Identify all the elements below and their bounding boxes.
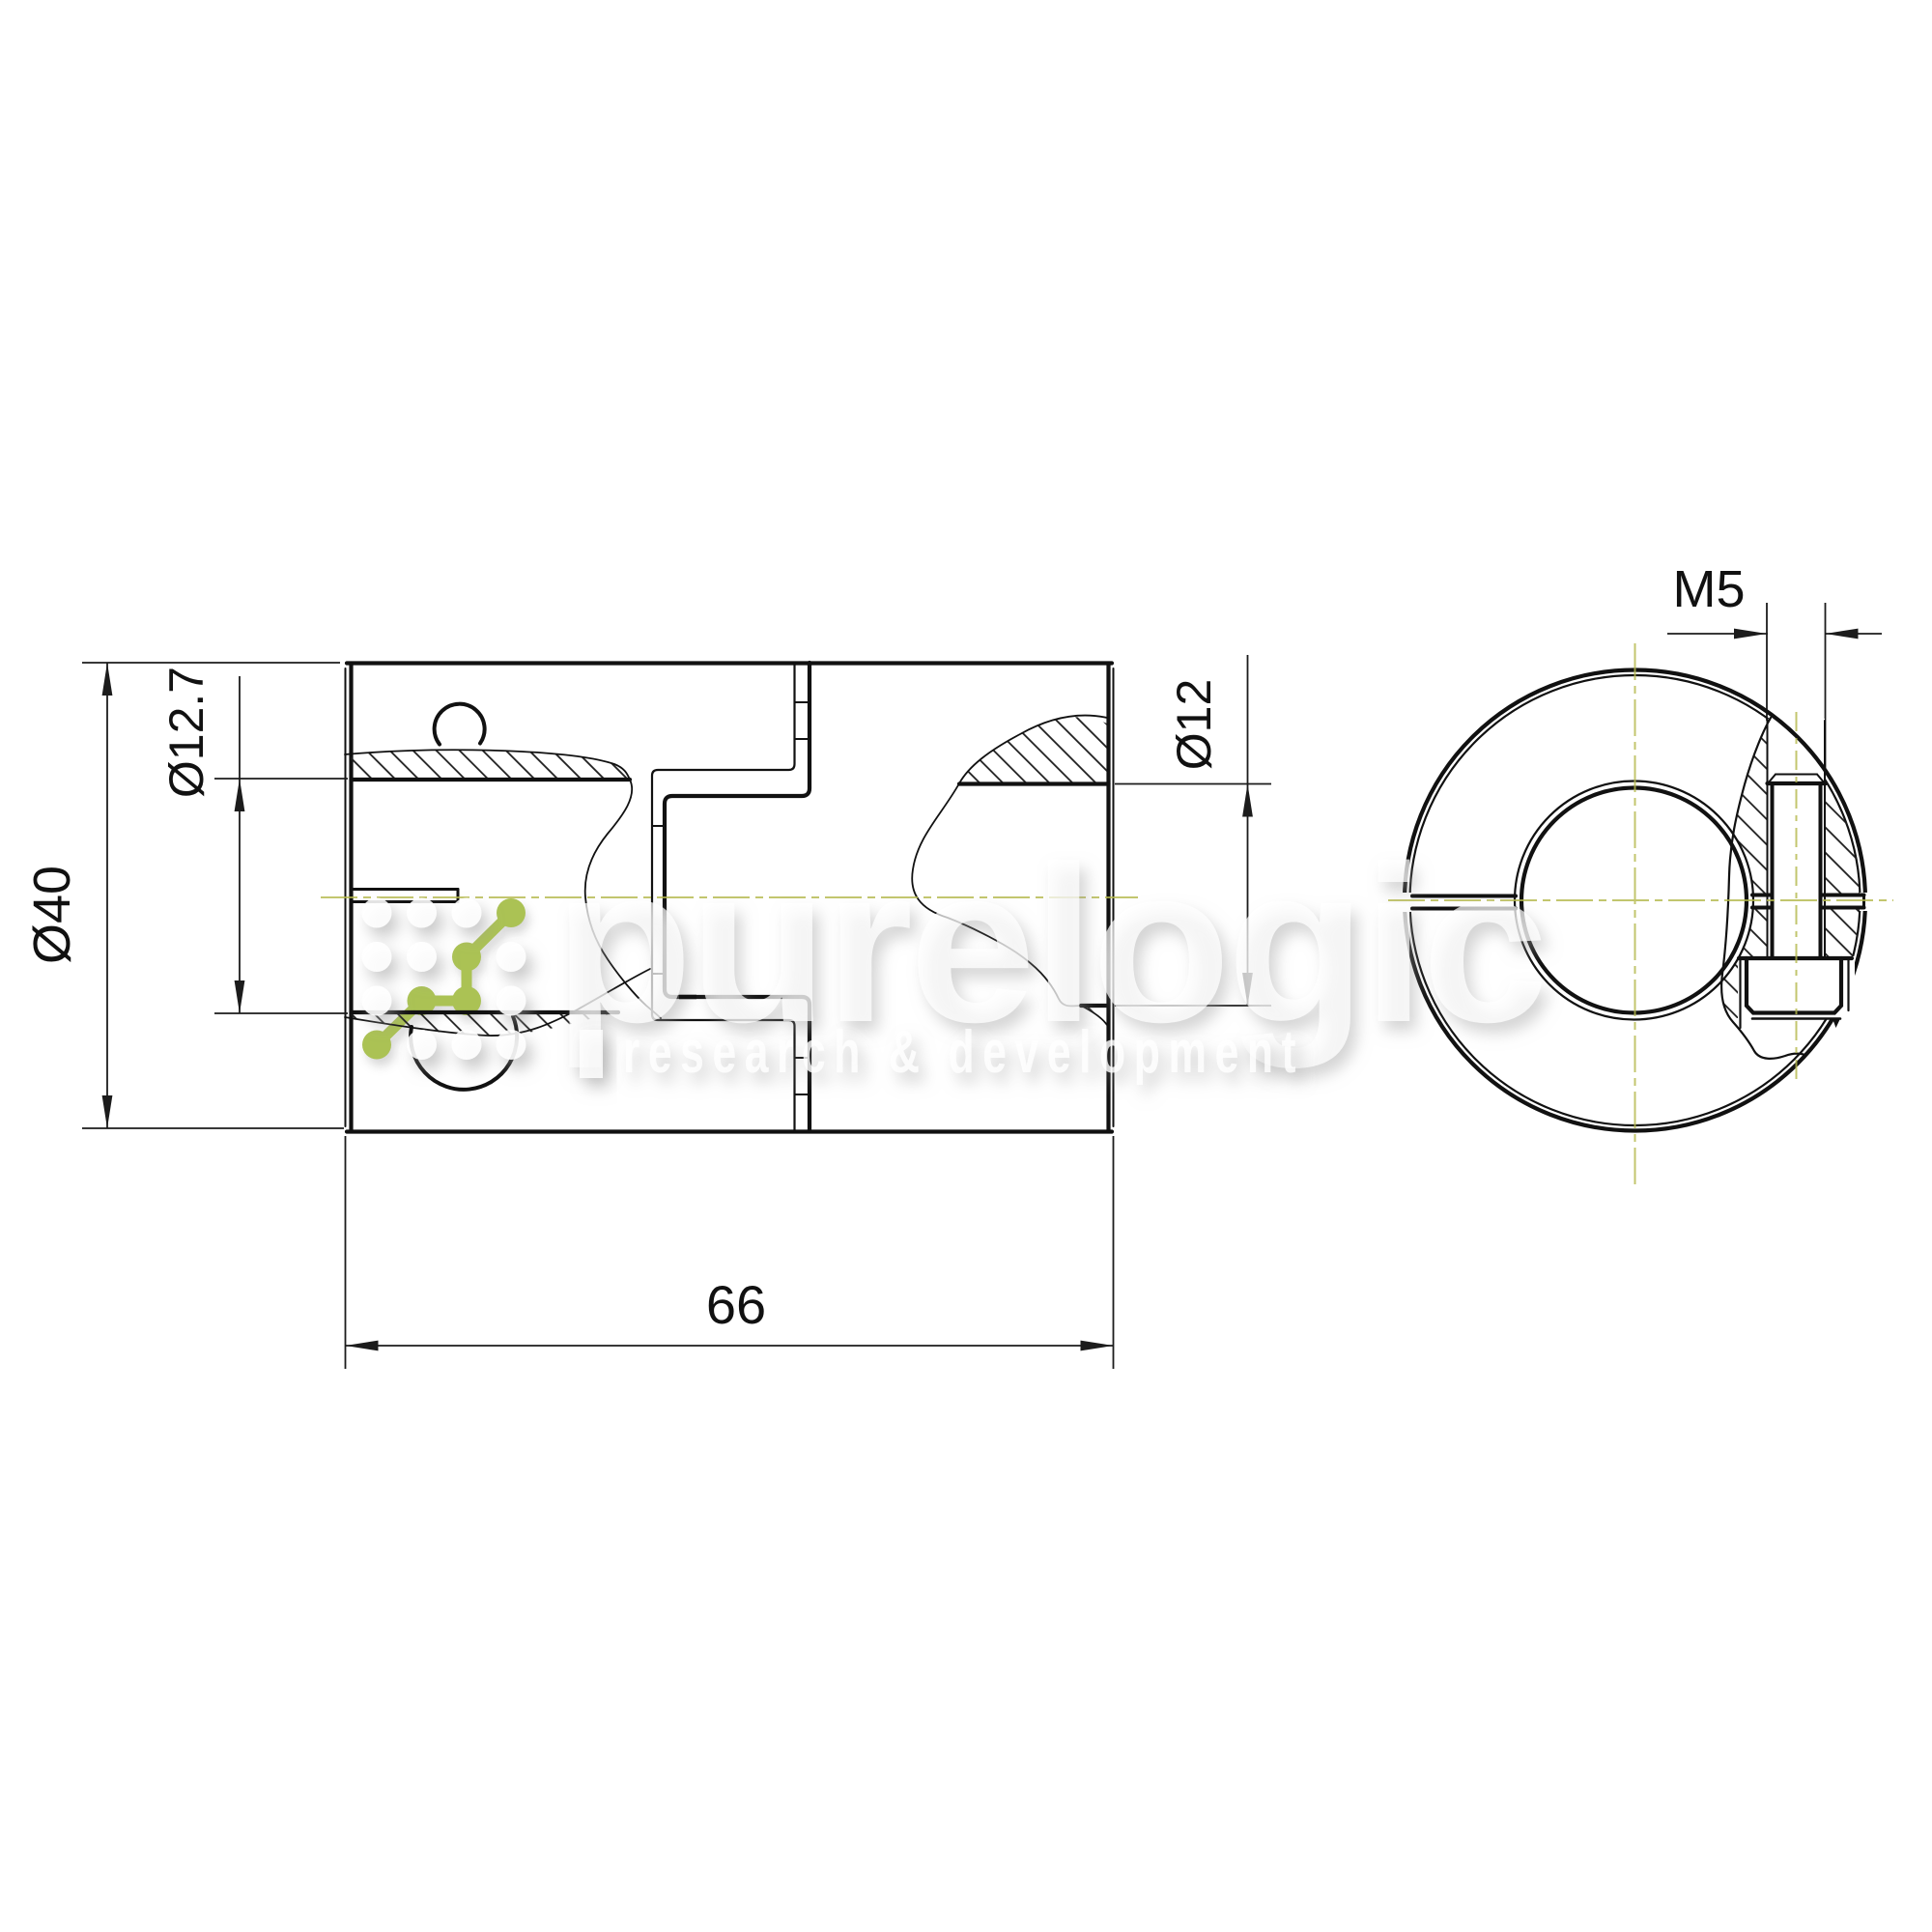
svg-text:Ø12: Ø12 [1167,679,1221,771]
svg-text:research & development: research & development [623,1019,1304,1086]
svg-text:Ø12.7: Ø12.7 [159,667,213,798]
svg-text:66: 66 [706,1274,766,1335]
svg-text:Ø40: Ø40 [23,866,81,964]
svg-text:M5: M5 [1672,560,1745,618]
